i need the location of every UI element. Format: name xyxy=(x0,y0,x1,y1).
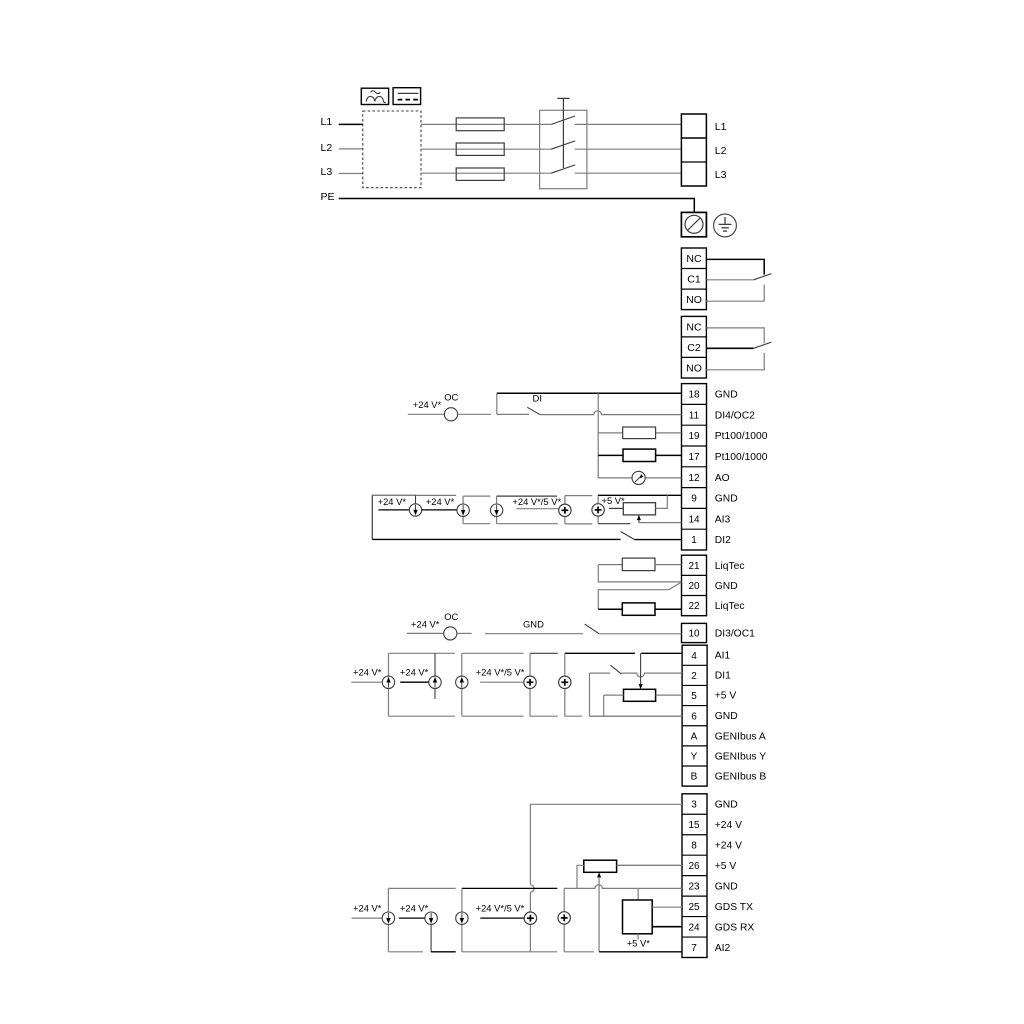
svg-text:L2: L2 xyxy=(321,142,333,154)
svg-text:GND: GND xyxy=(715,882,738,893)
svg-text:NO: NO xyxy=(686,363,702,375)
svg-text:+24 V*/5 V*: +24 V*/5 V* xyxy=(476,903,525,914)
svg-text:+24 V*: +24 V* xyxy=(378,496,407,507)
svg-text:GDS TX: GDS TX xyxy=(715,902,753,913)
svg-text:19: 19 xyxy=(688,431,700,442)
svg-text:C1: C1 xyxy=(687,274,701,286)
svg-text:A: A xyxy=(691,731,698,742)
svg-text:OC: OC xyxy=(444,611,458,622)
svg-text:5: 5 xyxy=(691,691,697,702)
svg-text:DI4/OC2: DI4/OC2 xyxy=(715,410,755,421)
svg-text:17: 17 xyxy=(688,452,700,463)
svg-text:12: 12 xyxy=(688,473,700,484)
svg-text:+24 V*: +24 V* xyxy=(411,618,440,629)
svg-text:21: 21 xyxy=(688,561,700,572)
svg-text:25: 25 xyxy=(688,902,700,913)
svg-text:AI1: AI1 xyxy=(715,651,731,662)
svg-text:1: 1 xyxy=(691,535,697,546)
svg-text:+5 V: +5 V xyxy=(715,861,737,872)
svg-text:14: 14 xyxy=(688,514,700,525)
svg-text:OC: OC xyxy=(444,392,458,403)
svg-text:GND: GND xyxy=(523,618,544,629)
svg-text:NC: NC xyxy=(686,321,702,333)
svg-text:L2: L2 xyxy=(715,145,727,157)
svg-text:7: 7 xyxy=(691,943,697,954)
svg-text:GDS RX: GDS RX xyxy=(715,923,755,934)
svg-text:+24 V*: +24 V* xyxy=(400,903,429,914)
svg-text:GND: GND xyxy=(715,800,738,811)
svg-text:GND: GND xyxy=(715,581,738,592)
svg-text:L1: L1 xyxy=(715,121,727,133)
svg-text:+5 V*: +5 V* xyxy=(602,495,626,506)
svg-text:LiqTec: LiqTec xyxy=(715,601,745,612)
svg-text:20: 20 xyxy=(688,581,700,592)
svg-text:+24 V: +24 V xyxy=(715,841,742,852)
svg-text:3: 3 xyxy=(691,800,697,811)
svg-text:AI2: AI2 xyxy=(715,943,731,954)
svg-text:DI2: DI2 xyxy=(715,535,731,546)
svg-text:24: 24 xyxy=(688,922,700,933)
svg-text:Pt100/1000: Pt100/1000 xyxy=(715,431,768,442)
svg-text:GND: GND xyxy=(715,494,738,505)
svg-text:GND: GND xyxy=(715,711,738,722)
svg-text:+5 V: +5 V xyxy=(715,691,737,702)
svg-text:10: 10 xyxy=(688,629,700,640)
svg-text:26: 26 xyxy=(688,861,700,872)
svg-text:GENIbus A: GENIbus A xyxy=(715,731,766,742)
svg-text:C2: C2 xyxy=(687,342,701,354)
svg-text:L3: L3 xyxy=(715,169,727,181)
svg-text:L3: L3 xyxy=(321,166,333,178)
svg-text:+24 V*: +24 V* xyxy=(413,399,442,410)
svg-text:+24 V*: +24 V* xyxy=(353,667,382,678)
svg-text:+24 V*/5 V*: +24 V*/5 V* xyxy=(476,667,525,678)
svg-text:9: 9 xyxy=(691,494,697,505)
svg-text:8: 8 xyxy=(691,841,697,852)
svg-text:L1: L1 xyxy=(321,116,333,128)
svg-text:4: 4 xyxy=(691,651,697,662)
svg-text:18: 18 xyxy=(688,390,700,401)
svg-text:NO: NO xyxy=(686,294,702,306)
svg-text:PE: PE xyxy=(321,191,335,203)
svg-text:GENIbus Y: GENIbus Y xyxy=(715,752,766,763)
svg-text:6: 6 xyxy=(691,711,697,722)
svg-text:AO: AO xyxy=(715,473,730,484)
svg-text:+24 V*/5 V*: +24 V*/5 V* xyxy=(512,496,561,507)
svg-text:DI: DI xyxy=(533,393,543,404)
svg-text:22: 22 xyxy=(688,601,700,612)
svg-text:+24 V*: +24 V* xyxy=(426,496,455,507)
svg-text:Pt100/1000: Pt100/1000 xyxy=(715,452,768,463)
svg-text:Y: Y xyxy=(691,752,698,763)
svg-text:11: 11 xyxy=(689,410,700,421)
svg-text:15: 15 xyxy=(688,820,700,831)
svg-text:23: 23 xyxy=(688,881,700,892)
svg-text:NC: NC xyxy=(686,253,702,265)
svg-text:+24 V*: +24 V* xyxy=(400,667,429,678)
svg-text:+5 V*: +5 V* xyxy=(627,938,651,949)
svg-text:GENIbus B: GENIbus B xyxy=(715,772,767,783)
svg-text:LiqTec: LiqTec xyxy=(715,561,745,572)
svg-text:GND: GND xyxy=(715,390,738,401)
svg-text:+24 V: +24 V xyxy=(715,820,742,831)
svg-text:+24 V*: +24 V* xyxy=(353,903,382,914)
svg-text:B: B xyxy=(691,772,698,783)
svg-text:DI1: DI1 xyxy=(715,671,731,682)
svg-text:DI3/OC1: DI3/OC1 xyxy=(715,629,755,640)
svg-text:2: 2 xyxy=(691,671,697,682)
svg-text:AI3: AI3 xyxy=(715,514,731,525)
